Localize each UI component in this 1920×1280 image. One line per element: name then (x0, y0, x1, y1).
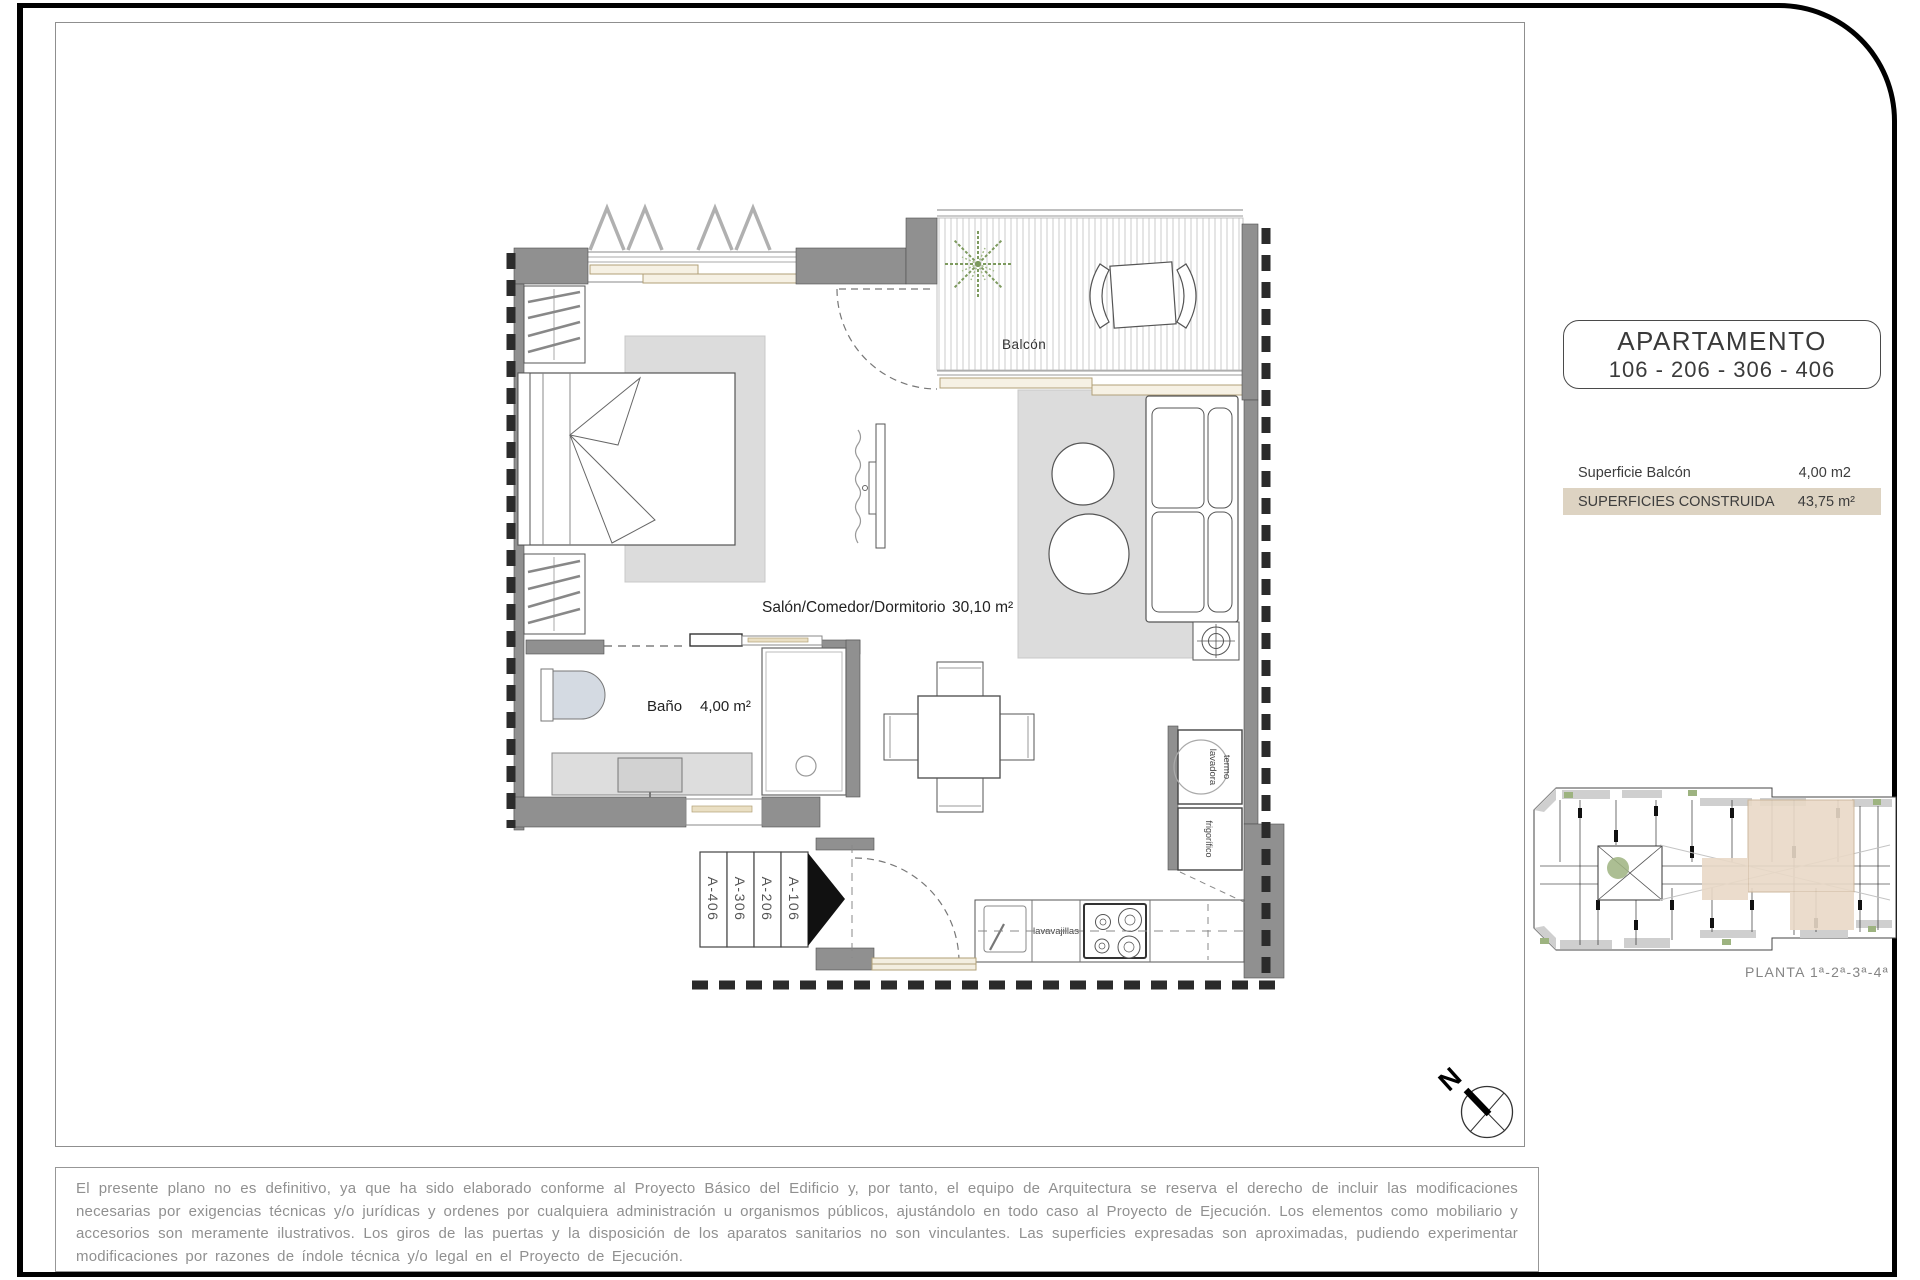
dining-table (918, 696, 1000, 778)
key-plan-caption: PLANTA 1ª-2ª-3ª-4ª (1745, 964, 1889, 980)
stair-core (1598, 846, 1662, 900)
north-label: N (1433, 1062, 1468, 1097)
bed (518, 373, 735, 545)
unit-tag: A-206 (759, 877, 775, 922)
cable-squiggle (856, 430, 861, 543)
wardrobe (524, 554, 585, 634)
balcony: Balcón (937, 210, 1243, 395)
entrance-arrow (808, 853, 845, 946)
plan-sheet: APARTAMENTO 106 - 206 - 306 - 406 Superf… (0, 0, 1920, 1280)
key-plan: PLANTA 1ª-2ª-3ª-4ª (1534, 788, 1896, 980)
table (1110, 262, 1176, 328)
shutter-symbol (590, 208, 770, 250)
compass: N (1433, 1062, 1513, 1138)
wardrobe (524, 286, 585, 363)
unit-tag: A-106 (786, 877, 802, 922)
balcony-label: Balcón (1002, 337, 1046, 352)
sofa (1146, 396, 1238, 622)
slider-pane (940, 378, 1092, 388)
bathroom: Baño 4,00 m² (541, 634, 846, 825)
coffee-table (1052, 443, 1114, 505)
fridge-label: frigorífico (1204, 820, 1214, 857)
slider-pane (1092, 385, 1243, 395)
kitchen: lavavajillas termo lavadora (975, 730, 1246, 962)
ac-unit (1193, 622, 1239, 660)
washer-label: lavadora (1207, 749, 1218, 786)
bath-area: 4,00 m² (700, 698, 751, 715)
sliding-door-panel (690, 634, 742, 646)
bath-label: Baño (647, 698, 682, 715)
floor-plan: Balcón (511, 208, 1284, 985)
dining-set (884, 662, 1034, 812)
living-area: 30,10 m² (952, 599, 1013, 616)
sink (984, 906, 1026, 952)
toilet (541, 669, 605, 721)
shower (762, 648, 846, 795)
fridge: frigorífico (1178, 808, 1242, 870)
bedroom-window (562, 208, 803, 283)
dishwasher-label: lavavajillas (1033, 926, 1079, 937)
tv-unit (856, 424, 886, 548)
door-swing (855, 858, 959, 962)
living-label: Salón/Comedor/Dormitorio (762, 599, 946, 616)
balcony-door-swing (837, 289, 937, 389)
coffee-table (1049, 514, 1129, 594)
vanity (552, 753, 752, 798)
unit-tag: A-306 (732, 877, 748, 922)
boiler-washer: termo lavadora (1174, 730, 1242, 804)
unit-tag: A-406 (705, 877, 721, 922)
boiler-label: termo (1221, 755, 1232, 779)
plan-graphics: Balcón (0, 0, 1920, 1280)
